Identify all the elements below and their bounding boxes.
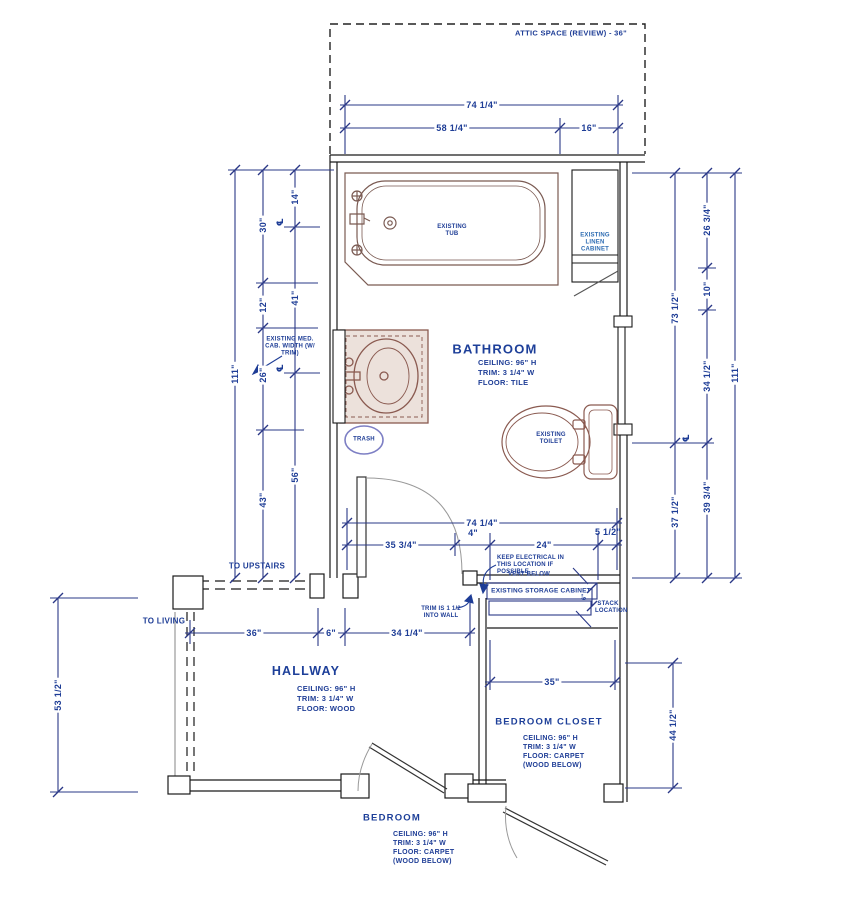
bedroom-details: CEILING: 96" H TRIM: 3 1/4" W FLOOR: CAR… xyxy=(393,830,454,866)
dim-left-b2: 26" xyxy=(258,365,268,384)
dim-left-b1: 12" xyxy=(258,295,268,314)
bedroom-closet-title: BEDROOM CLOSET xyxy=(495,717,603,728)
vent-below-note: VENT BELOW xyxy=(508,572,550,579)
attic-outline xyxy=(330,24,645,154)
centerline-symbol: ℄ xyxy=(276,362,286,374)
centerline-symbol: ℄ xyxy=(682,432,692,444)
door-swings xyxy=(357,477,608,865)
dim-hall-1: 6" xyxy=(324,628,338,638)
bedroom-floor: FLOOR: CARPET xyxy=(393,848,454,857)
bathroom-ceiling: CEILING: 96" H xyxy=(478,358,537,368)
dim-hall-left: 53 1/2" xyxy=(53,677,63,712)
dim-closet-width: 35" xyxy=(542,677,561,687)
bedroom-trim: TRIM: 3 1/4" W xyxy=(393,839,454,848)
trash-label: TRASH xyxy=(349,437,379,444)
dim-right-b3: 39 3/4" xyxy=(702,479,712,514)
toilet-label: EXISTING TOILET xyxy=(533,432,569,446)
dim-left-c2: 56" xyxy=(290,465,300,484)
dim-top-a: 58 1/4" xyxy=(434,123,469,133)
bathroom-trim: TRIM: 3 1/4" W xyxy=(478,368,537,378)
hallway-floor: FLOOR: WOOD xyxy=(297,704,356,714)
to-upstairs-label: TO UPSTAIRS xyxy=(227,562,287,571)
dim-left-b3: 43" xyxy=(258,490,268,509)
linen-cabinet-label: EXISTING LINEN CABINET xyxy=(577,233,613,254)
trim-wall-note: TRIM IS 1 1/2 INTO WALL xyxy=(419,606,463,620)
dim-hall-0: 36" xyxy=(244,628,263,638)
bathroom-floor: FLOOR: TILE xyxy=(478,378,537,388)
floor-plan: ATTIC SPACE (REVIEW) - 36" 74 1/4" 58 1/… xyxy=(0,0,863,902)
dim-left-b0: 30" xyxy=(258,215,268,234)
bedroom-floor-note: (WOOD BELOW) xyxy=(393,857,454,866)
dim-hall-2: 34 1/4" xyxy=(389,628,424,638)
tub-label: EXISTING TUB xyxy=(435,224,469,238)
to-living-label: TO LIVING xyxy=(141,617,188,626)
closet-floor-note: (WOOD BELOW) xyxy=(523,761,584,770)
stack-location-label: STACK LOCATION xyxy=(595,601,621,615)
dim-bath-total: 74 1/4" xyxy=(464,518,499,528)
dim-right-b2: 34 1/2" xyxy=(702,358,712,393)
sink-vanity-drawing xyxy=(333,330,428,423)
closet-floor: FLOOR: CARPET xyxy=(523,752,584,761)
hallway-details: CEILING: 96" H TRIM: 3 1/4" W FLOOR: WOO… xyxy=(297,684,356,714)
dim-closet-depth: 44 1/2" xyxy=(668,707,678,742)
dim-left-c1: 41" xyxy=(290,288,300,307)
bedroom-title: BEDROOM xyxy=(363,813,421,824)
dim-bath-s3: 5 1/2" xyxy=(593,527,623,537)
bathroom-title: BATHROOM xyxy=(452,342,537,357)
bedroom-ceiling: CEILING: 96" H xyxy=(393,830,454,839)
dim-left-c0: 14" xyxy=(290,187,300,206)
attic-label: ATTIC SPACE (REVIEW) - 36" xyxy=(513,29,629,38)
hallway-ceiling: CEILING: 96" H xyxy=(297,684,356,694)
dim-left-total: 111" xyxy=(230,362,240,386)
dimension-lines xyxy=(50,95,742,792)
dim-right-a0: 73 1/2" xyxy=(670,290,680,325)
closet-trim: TRIM: 3 1/4" W xyxy=(523,743,584,752)
dim-bath-s2: 24" xyxy=(534,540,553,550)
dim-bath-s0: 35 3/4" xyxy=(383,540,418,550)
med-cab-note: EXISTING MED. CAB. WIDTH (W/ TRIM) xyxy=(259,337,321,358)
hallway-trim: TRIM: 3 1/4" W xyxy=(297,694,356,704)
dim-top-total: 74 1/4" xyxy=(464,100,499,110)
storage-cabinet-label: EXISTING STORAGE CABINET xyxy=(487,588,595,595)
bedroom-closet-details: CEILING: 96" H TRIM: 3 1/4" W FLOOR: CAR… xyxy=(523,734,584,770)
dim-right-b0: 26 3/4" xyxy=(702,202,712,237)
bathroom-details: CEILING: 96" H TRIM: 3 1/4" W FLOOR: TIL… xyxy=(478,358,537,388)
plan-linework xyxy=(0,0,863,902)
walls xyxy=(175,155,645,802)
dim-right-total: 111" xyxy=(730,361,740,385)
dim-right-a1: 37 1/2" xyxy=(670,494,680,529)
dim-bath-s1: 4" xyxy=(466,528,480,538)
closet-ceiling: CEILING: 96" H xyxy=(523,734,584,743)
dim-top-b: 16" xyxy=(579,123,598,133)
dimension-ticks xyxy=(53,100,740,797)
centerline-symbol: ℄ xyxy=(276,216,286,228)
hallway-title: HALLWAY xyxy=(272,664,340,678)
dim-right-b1: 10" xyxy=(702,279,712,298)
